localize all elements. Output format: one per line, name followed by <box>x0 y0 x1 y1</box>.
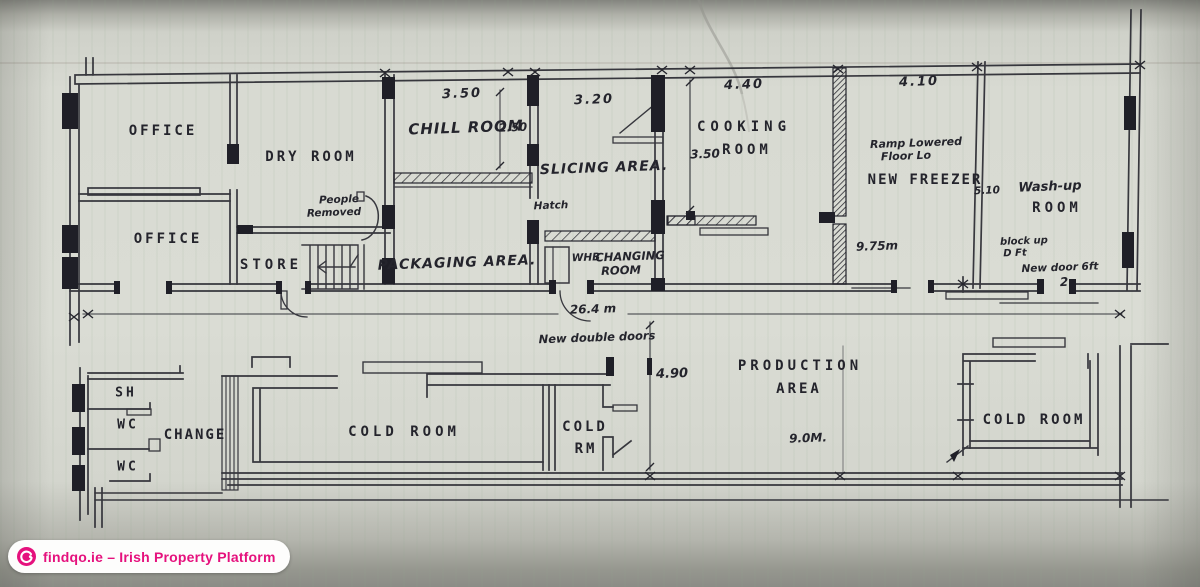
room-label-wc-bottom: WC <box>117 461 139 474</box>
room-label-change: CHANGE <box>164 428 227 442</box>
room-label-cooking-2: ROOM <box>722 143 772 157</box>
dim-production-width: 4.90 <box>656 367 689 381</box>
annotation-block-up-1: block up <box>1000 236 1048 248</box>
room-label-cooking-1: COOKING <box>697 120 791 134</box>
floorplan-drawing <box>0 0 1200 587</box>
findqo-watermark: findqo.ie – Irish Property Platform <box>8 540 290 573</box>
room-label-washup-1: Wash-up <box>1018 179 1082 194</box>
room-label-washup-2: ROOM <box>1032 201 1082 215</box>
dim-cooking-width: 4.40 <box>724 78 765 92</box>
room-label-store: STORE <box>240 258 302 272</box>
annotation-freezer-note-1: Ramp Lowered <box>870 136 962 150</box>
room-label-cold-room-left: COLD ROOM <box>348 425 460 439</box>
annotation-people-removed-2: Removed <box>307 207 362 219</box>
dim-slicing-width: 3.20 <box>574 93 615 107</box>
dim-hall-length: 9.75m <box>856 239 899 252</box>
room-label-changing-1: CHANGING <box>595 250 665 264</box>
room-label-dry-room: DRY ROOM <box>265 150 356 164</box>
room-label-changing-2: ROOM <box>601 265 641 278</box>
room-label-cold-rm-1: COLD <box>562 420 608 434</box>
room-label-cold-rm-2: RM <box>575 442 598 456</box>
room-label-cold-room-right: COLD ROOM <box>983 413 1086 427</box>
findqo-logo-icon <box>17 547 36 566</box>
annotation-new-door-num: 2 <box>1060 276 1069 288</box>
annotation-freezer-note-2: Floor Lo <box>881 150 932 163</box>
room-label-office-top: OFFICE <box>129 124 198 138</box>
room-label-wc-top: WC <box>117 419 139 432</box>
room-label-shower: SH <box>115 387 137 400</box>
room-label-production-1: PRODUCTION <box>738 359 862 373</box>
floorplan-photo: OFFICE OFFICE DRY ROOM STORE COOKING ROO… <box>0 0 1200 587</box>
dim-production-length: 9.0M. <box>789 431 827 444</box>
annotation-block-up-2: D Ft <box>1003 249 1027 260</box>
room-label-production-2: AREA <box>776 382 822 396</box>
dim-chill-width: 3.50 <box>442 87 483 101</box>
dim-overall-length: 26.4 m <box>570 302 617 316</box>
label-hatch: Hatch <box>534 200 569 212</box>
watermark-text: findqo.ie – Irish Property Platform <box>43 549 276 565</box>
annotation-new-door: New door 6ft <box>1021 261 1098 274</box>
annotation-people-removed-1: People <box>319 194 359 206</box>
room-label-new-freezer: NEW FREEZER <box>868 173 983 187</box>
dim-freezer-width: 4.10 <box>899 75 940 89</box>
dim-freezer-height: 5.10 <box>974 185 1000 196</box>
dim-chill-height: 2.50 <box>499 122 528 134</box>
dim-cooking-height: 3.50 <box>690 147 720 160</box>
room-label-office-bottom: OFFICE <box>134 232 203 246</box>
